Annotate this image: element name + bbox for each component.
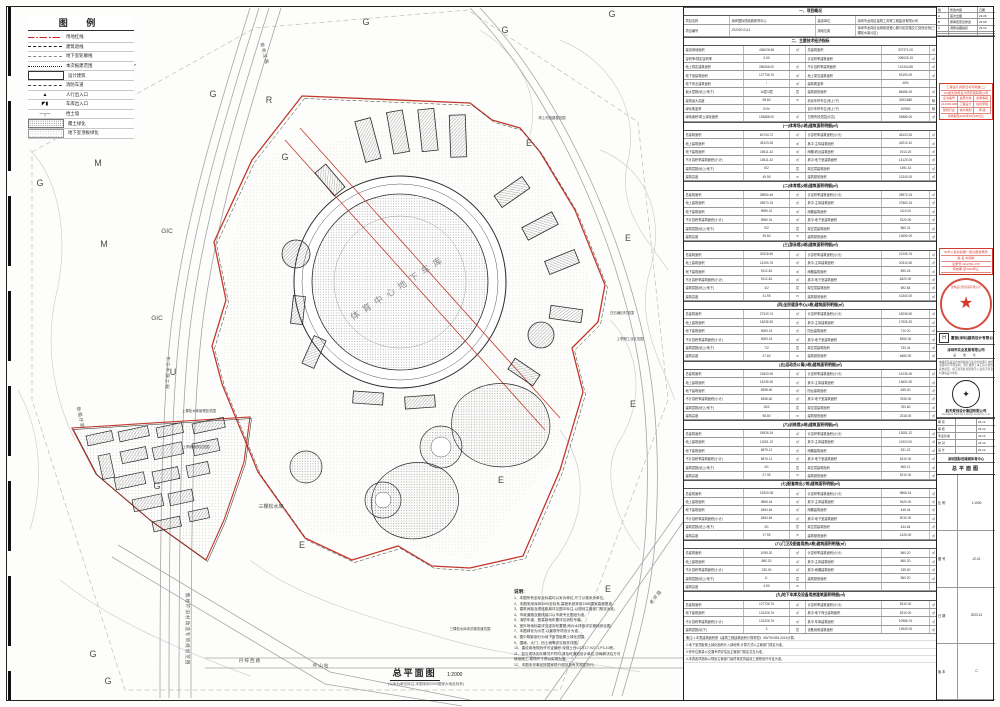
table-cell: 架空层建筑面积: [806, 284, 882, 291]
table-cell: 21205.76: [882, 251, 930, 258]
table-data-row: 地上建筑面积18236.50㎡其中:主体建筑面积17526.30㎡: [684, 319, 937, 327]
plan-scale: 1:2000: [447, 672, 462, 678]
table-cell: 地下建筑面积: [684, 387, 744, 394]
table-cell: 84686.30: [882, 88, 930, 95]
table-data-row: 不计容积率建筑面积(小计)9980.31㎡其中:地下室建筑面积9120.00㎡: [684, 216, 937, 224]
table-cell: 其中:主体建筑面积: [806, 139, 882, 146]
revision-cell: [949, 32, 978, 33]
owner-box: 深圳市实业发展有限公司 盖 章 处: [937, 345, 995, 359]
graydash-icon: [28, 53, 62, 60]
table-data-row: 建筑高度47.60m建筑基底面积6480.00㎡: [684, 352, 937, 360]
table-data-row: 建筑高度4.50m: [684, 583, 937, 591]
table-cell: 53190.00: [882, 71, 930, 78]
round-annex-building: [282, 240, 310, 268]
plan-title-block: 总平面图 1:2000 (以米为单位标注,本图采用2000国家大地坐标系): [388, 663, 464, 687]
table-cell: 地下商业建筑面积: [684, 80, 744, 87]
table-cell: 架空层建筑面积: [806, 463, 882, 470]
road-name-label: 俄地吓旧村改造专项规划范围: [184, 593, 191, 666]
zone-letter: E: [625, 233, 631, 243]
table-section-title: (九)地下车库及设备用房建筑面积明细(㎡): [776, 592, 846, 599]
table-cell: 9980.31: [744, 216, 790, 223]
table-cell: 总建筑面积: [684, 251, 744, 258]
zone-letter: G: [89, 649, 96, 659]
table-data-row: 总建筑面积22633.90㎡计容积率建筑面积(小计)14235.30㎡: [684, 370, 937, 378]
table-data-row: 建筑高度49.95m建筑基底面积21340.00㎡: [684, 173, 937, 181]
table-cell: 总建筑面积: [684, 549, 744, 556]
zone-letter: GIC: [161, 228, 173, 235]
table-section-header: (六)训练馆(6栋)建筑面积明细(㎡): [684, 420, 937, 429]
legend-item: 地下室顶板绿化: [28, 129, 134, 139]
table-cell: 层: [790, 523, 806, 530]
table-cell: 计容积率建筑面积(小计): [806, 310, 882, 317]
table-data-row: 总建筑面积1095.20㎡计容积率建筑面积(小计)860.20㎡: [684, 549, 937, 557]
table-cell: ㎡: [790, 131, 806, 138]
table-cell: 38950.46: [744, 191, 790, 198]
table-data-row: 不计容积率建筑面积(小计)6875.12㎡其中:地下室建筑面积6310.00㎡: [684, 455, 937, 463]
table-cell: 14235.30: [882, 370, 930, 377]
table-cell: 用地位置: [816, 25, 856, 36]
table-cell: 地上建筑面积: [684, 558, 744, 565]
table-cell: m: [790, 412, 806, 419]
table-cell: 容积率/规定容积率: [684, 55, 744, 62]
table-cell: 建筑高度: [684, 233, 744, 240]
table-data-row: 建筑最大高度98.80m机动车停车位(地上/下)325/2680辆: [684, 97, 937, 105]
table-cell: 建筑高度: [684, 173, 744, 180]
table-cell: 其中:主体建筑面积: [806, 498, 882, 505]
plan-annotation-label: 简上村统建楼范围: [538, 115, 566, 120]
legend-label: 建筑退线: [66, 44, 84, 50]
table-data-row: 建筑层数(地上/地下)4/1层架空层建筑面积565.12㎡: [684, 463, 937, 471]
table-cell: 地下建筑面积: [684, 327, 744, 334]
zone-letter: GIC: [151, 315, 163, 322]
table-cell: 18926.34: [744, 430, 790, 437]
table-cell: 8398.60: [744, 395, 790, 402]
table-data-row: 地下建筑面积9083.24㎡阳台建筑面积710.20㎡: [684, 327, 937, 335]
table-cell: ㎡: [790, 430, 806, 437]
table-cell: 架空层建筑面积: [806, 523, 882, 530]
table-data-row: 建筑层数(地上/地下)6/2层架空层建筑面积1491.42㎡: [684, 165, 937, 173]
signature-cell: [956, 447, 977, 453]
plan-annotation-label: 上李朗地铁站范围: [182, 444, 210, 449]
table-cell: 不计容积率建筑面积: [806, 63, 882, 70]
revision-cell: 23.12: [978, 26, 995, 31]
table-data-row: 建筑层数(地上/地下)7/2层架空层建筑面积733.24㎡: [684, 344, 937, 352]
table-cell: 27.35: [744, 472, 790, 479]
legend-label: 挡土墙: [66, 111, 79, 117]
table-cell: ㎡: [790, 370, 806, 377]
table-cell: m: [790, 293, 806, 300]
table-cell: 总建筑面积: [684, 430, 744, 437]
table-section-title: (六)训练馆(6栋)建筑面积明细(㎡): [783, 422, 838, 429]
legend-item: ◤▮车库出入口: [28, 100, 134, 110]
table-cell: 雨棚建筑面积: [806, 506, 882, 513]
table-cell: ㎡: [790, 498, 806, 505]
table-data-row: 地上建筑面积45123.30㎡其中:主体建筑面积43210.10㎡: [684, 139, 937, 147]
table-cell: 总建筑面积: [684, 489, 744, 496]
table-section-title: (四)全民健身中心(4栋)建筑面积明细(㎡): [777, 302, 844, 309]
revision-cell: 首次出图: [949, 13, 978, 18]
table-cell: ㎡: [790, 191, 806, 198]
revision-cell: 版: [937, 7, 949, 12]
table-cell: 地上建筑面积: [684, 139, 744, 146]
zone-letter: E: [498, 475, 504, 485]
legend-label: 地下室顶板绿化: [68, 130, 99, 136]
notes-panel: 说明: 1、本图所有坐标及标高均以米为单位,尺寸以毫米为单位。2、本图采用深圳2…: [514, 589, 696, 668]
table-cell: 建筑基底面积: [806, 88, 882, 95]
notes-title: 说明:: [514, 589, 696, 595]
revision-cell: [978, 34, 995, 35]
table-cell: 692.84: [882, 284, 930, 291]
table-cell: 建筑层数(地上/地下): [684, 224, 744, 231]
table-cell: 127736.76: [744, 601, 790, 608]
titleblock-label: 图 号: [937, 531, 958, 586]
table-cell: 地下建筑面积: [684, 148, 744, 155]
table-cell: 地下室建筑面积: [684, 71, 744, 78]
table-data-row: 地下建筑面积6875.12㎡雨棚建筑面积531.22㎡: [684, 447, 937, 455]
table-cell: ㎡: [790, 251, 806, 258]
table-remark-line: 备注:1.本表建筑面积按《建筑工程建筑面积计算规范》GB/T50353-2013…: [684, 634, 937, 641]
table-cell: /: [744, 80, 790, 87]
table-cell: 阳台建筑面积: [806, 387, 882, 394]
qualification-stamp: 工程设计资质证书专用章(二) XX航天建筑设计研究院有限公司 证书编号资质分类资…: [939, 83, 993, 120]
table-cell: 阳台建筑面积: [806, 327, 882, 334]
table-cell: 13600.30: [882, 378, 930, 385]
table-cell: m: [790, 233, 806, 240]
design-firm-row: H 霍普(深圳)建筑设计有限公司: [937, 331, 995, 345]
table-cell: 建筑高度: [684, 412, 744, 419]
table-data-row: 绿化覆盖率51%自行车停车位(地上/下)1095/0辆: [684, 105, 937, 113]
table-cell: 22633.90: [744, 370, 790, 377]
table-cell: m: [790, 583, 806, 590]
round-annex-building-2: [528, 322, 554, 348]
table-cell: 860.20: [744, 558, 790, 565]
table-cell: 153888.00: [744, 113, 790, 120]
legend-item: 地下室轮廓线: [28, 52, 134, 62]
table-data-row: 地下建筑面积8398.60㎡阳台建筑面积635.00㎡: [684, 387, 937, 395]
table-cell: 4.50: [744, 583, 790, 590]
table-cell: 445.44: [882, 506, 930, 513]
table-data-row: 建筑高度39.80m建筑基底面积12650.00㎡: [684, 233, 937, 241]
table-data-row: 最大层数(地上/地下)16层/3层层建筑基底面积84686.30㎡: [684, 88, 937, 96]
table-cell: 其中:地下室建筑面积: [806, 216, 882, 223]
zone-letter: E: [630, 399, 636, 409]
legend-title: 图 例: [28, 16, 134, 31]
table-cell: ㎡: [790, 216, 806, 223]
table-data-row: 地上建筑面积14235.30㎡其中:主体建筑面积13600.30㎡: [684, 378, 937, 386]
table-cell: 地下建筑面积: [684, 506, 744, 513]
revision-row: [937, 34, 995, 36]
table-section-title: 二、主要技术经济指标: [792, 38, 830, 45]
table-cell: 10240.00: [882, 293, 930, 300]
table-cell: 565.12: [882, 463, 930, 470]
table-data-row: 地上建筑面积21205.76㎡其中:主体建筑面积20310.50㎡: [684, 259, 937, 267]
table-cell: 不计容积率建筑面积(小计): [684, 515, 744, 522]
zone-letter: G: [153, 481, 160, 491]
table-cell: 计容积率建筑面积(小计): [806, 489, 882, 496]
table-cell: m: [790, 531, 806, 538]
table-cell: 地上建筑面积: [684, 378, 744, 385]
table-info-row: 项目名称深圳国际低碳城体育中心建设单位深圳市龙岗区建筑工务署工程建设有限公司: [684, 16, 937, 24]
table-cell: 总建筑面积: [684, 191, 744, 198]
table-cell: 3/1: [744, 523, 790, 530]
table-cell: 深圳市龙岗区龙城街道爱心路与如意路交汇处西北侧(三棵松水库片区): [856, 25, 937, 36]
titleblock-value: 2023.12: [958, 588, 995, 643]
zone-letter: G: [362, 17, 369, 27]
table-cell: 建筑最大高度: [684, 97, 744, 104]
table-data-row: 建筑高度17.95m建筑基底面积4126.00㎡: [684, 531, 937, 539]
legend-item: ─┬─挡土墙: [28, 110, 134, 120]
table-cell: ㎡: [790, 71, 806, 78]
table-data-row: 总建筑面积27319.74㎡计容积率建筑面积(小计)18236.50㎡: [684, 310, 937, 318]
table-data-row: 地上建筑面积28970.15㎡其中:主体建筑面积27860.15㎡: [684, 199, 937, 207]
table-cell: 8420.00: [882, 276, 930, 283]
table-cell: 16/2: [744, 404, 790, 411]
table-cell: 建筑基底面积: [806, 412, 882, 419]
table-section-title: (七)配套商业(7栋)建筑面积明细(㎡): [781, 481, 840, 488]
table-cell: 531.22: [882, 447, 930, 454]
table-data-row: 建筑层数(地上/地下)16/2层架空层建筑面积763.60㎡: [684, 404, 937, 412]
table-cell: 不计容积率建筑面积(小计): [684, 335, 744, 342]
road-name-label: 新布龙路: [258, 42, 270, 65]
revision-cell: 修改内容: [949, 7, 978, 12]
legend-label: 车库出入口: [66, 101, 88, 107]
legend-label: 设计建筑: [68, 73, 86, 79]
table-data-row: 地上建筑面积12051.22㎡其中:主体建筑面积11520.00㎡: [684, 438, 937, 446]
table-cell: ㎡: [790, 447, 806, 454]
table-cell: 49.95: [744, 173, 790, 180]
table-cell: 15611.42: [744, 148, 790, 155]
table-cell: 15320.08: [744, 489, 790, 496]
table-cell: 860.31: [882, 224, 930, 231]
table-data-row: 不计容积率建筑面积(小计)122426.76㎡其中:车库建筑面积10986.76…: [684, 617, 937, 625]
table-data-row: 不计容积率建筑面积(小计)9083.24㎡其中:地下室建筑面积8350.00㎡: [684, 335, 937, 343]
titleblock-label: 比 例: [937, 475, 958, 530]
titleblock-value: 1:1000: [958, 475, 995, 530]
table-section-title: (八)门卫及配套用房(8栋)建筑面积明细(㎡): [775, 541, 845, 548]
table-cell: 层: [790, 224, 806, 231]
table-cell: 计容积率建筑面积: [806, 55, 882, 62]
table-cell: ㎡: [790, 438, 806, 445]
table-cell: 12051.22: [744, 438, 790, 445]
table-cell: 11520.00: [882, 438, 930, 445]
zone-letter: M: [100, 239, 108, 249]
signature-cell: 专业负责: [937, 433, 956, 439]
revision-table: 版修改内容日期A首次出图23.06B按审查意见修改23.09C调整总图指标23.…: [937, 7, 995, 37]
table-cell: [790, 55, 806, 62]
table-data-row: 总建筑面积30318.60㎡计容积率建筑面积(小计)21205.76㎡: [684, 251, 937, 259]
table-cell: 雨棚建筑面积: [806, 447, 882, 454]
table-cell: 不计容积率建筑面积(小计): [684, 216, 744, 223]
table-data-row: 总建筑面积18926.34㎡计容积率建筑面积(小计)12051.22㎡: [684, 430, 937, 438]
titleblock-label: 日 期: [937, 588, 958, 643]
plan-annotation-label: 上棵松水库管理处范围: [182, 408, 217, 413]
zone-letter: G: [501, 25, 508, 35]
table-cell: 总建筑面积: [684, 601, 744, 608]
table-cell: 7/2: [744, 344, 790, 351]
table-cell: 12540.00: [882, 626, 930, 633]
table-cell: 0.60: [744, 55, 790, 62]
signature-row: 设 计23.12: [937, 447, 995, 454]
table-cell: ㎡: [790, 566, 806, 573]
seal-star-icon: ★: [959, 293, 973, 313]
owner-seal-area-label: 盖 章 处: [939, 353, 993, 357]
table-cell: 日照有效范围(示意): [806, 113, 882, 120]
table-cell: ㎡: [790, 506, 806, 513]
signature-row: 校 对23.12: [937, 440, 995, 447]
table-cell: 计容积率建筑面积(小计): [806, 549, 882, 556]
table-cell: 其中:主体建筑面积: [806, 319, 882, 326]
table-cell: 27860.15: [882, 199, 930, 206]
table-data-row: 不计容积率建筑面积(小计)8398.60㎡其中:地下室建筑面积7635.00㎡: [684, 395, 937, 403]
table-cell: 9112.84: [744, 267, 790, 274]
table-cell: ㎡: [790, 617, 806, 624]
table-cell: 5210.00: [882, 472, 930, 479]
table-section-header: (三)游泳馆(3栋)建筑面积明细(㎡): [684, 241, 937, 250]
stamp-grid-cell: 甲 级: [974, 108, 991, 114]
road-name-label: 坪山站: [313, 662, 330, 669]
table-cell: 建筑层数(地上/地下): [684, 165, 744, 172]
table-cell: 9112.84: [744, 276, 790, 283]
table-cell: 5/2: [744, 224, 790, 231]
table-section-header: (一)体育场(1栋)建筑面积明细(㎡): [684, 122, 937, 131]
table-cell: 10986.76: [882, 617, 930, 624]
table-data-row: 总建筑面积60734.72㎡计容积率建筑面积(小计)45123.30㎡: [684, 131, 937, 139]
table-cell: 1095.20: [744, 549, 790, 556]
table-cell: 46%: [882, 80, 930, 87]
table-data-row: 地下商业建筑面积/㎡建筑覆盖率46%: [684, 80, 937, 88]
table-cell: JS2020-0112: [730, 25, 816, 36]
architect-stamp: 中华人民共和国一级注册建筑师 姓 名 刘如昕注册号 1112301-076有效期…: [939, 248, 993, 275]
table-cell: 7635.00: [882, 395, 930, 402]
road-name-label: 东江水源工程: [163, 356, 171, 390]
table-cell: ㎡: [790, 63, 806, 70]
table-cell: 28970.15: [882, 191, 930, 198]
table-cell: 总建筑面积: [806, 46, 882, 53]
table-cell: 9120.00: [882, 216, 930, 223]
table-cell: 8398.60: [744, 387, 790, 394]
table-cell: ㎡: [790, 558, 806, 565]
plan-annotation-label: 三棵松水库: [258, 503, 283, 510]
table-data-row: 总建筑面积38950.46㎡计容积率建筑面积(小计)28970.15㎡: [684, 191, 937, 199]
signature-cell: 设 计: [937, 447, 956, 453]
signature-cell: 23.12: [977, 419, 995, 425]
table-cell: 地下建筑面积: [684, 208, 744, 215]
table-cell: 733.24: [882, 344, 930, 351]
table-cell: 31.95: [744, 293, 790, 300]
table-cell: 建筑高度: [684, 531, 744, 538]
zone-letter: E: [299, 540, 305, 550]
table-cell: [882, 583, 930, 590]
plan-annotation-label: 三棵松水库泄洪渠改道范围: [450, 626, 491, 631]
table-cell: 其中:地下室建筑面积: [806, 455, 882, 462]
table-cell: 雨棚建筑面积: [806, 267, 882, 274]
table-cell: [790, 105, 806, 112]
table-cell: 9083.24: [744, 327, 790, 334]
table-cell: 项目名称: [684, 16, 730, 23]
table-section-header: 二、主要技术经济指标: [684, 37, 937, 46]
signature-cell: 23.12: [977, 426, 995, 432]
table-cell: 建筑基底面积: [806, 531, 882, 538]
table-cell: 6480.00: [882, 352, 930, 359]
table-cell: 其中:雨棚建筑面积: [806, 566, 882, 573]
table-cell: 地上建筑面积: [684, 259, 744, 266]
table-cell: 架空层建筑面积: [806, 165, 882, 172]
table-cell: 5454.64: [744, 515, 790, 522]
venue-building: [291, 295, 306, 324]
table-cell: ㎡: [790, 276, 806, 283]
legend-item: 覆土绿化: [28, 119, 134, 129]
table-cell: 28970.15: [744, 199, 790, 206]
table-cell: 9865.44: [882, 489, 930, 496]
table-cell: 地下建筑面积: [684, 267, 744, 274]
hatch-icon: [28, 119, 64, 128]
table-cell: 其中:地下室建筑面积: [806, 335, 882, 342]
table-remark-line: 2.地下室顶板覆土绿化面积计入绿地率,计算方式以主管部门核定为准。: [684, 641, 937, 648]
table-cell: 建筑基底面积: [806, 173, 882, 180]
table-cell: 18236.50: [744, 319, 790, 326]
table-cell: 层: [790, 574, 806, 581]
table-cell: 项目编号: [684, 25, 730, 36]
table-section-title: (二)体育馆(2栋)建筑面积明细(㎡): [783, 183, 838, 190]
table-cell: ㎡: [790, 199, 806, 206]
table-cell: 2318.00: [882, 412, 930, 419]
table-cell: 其中:主体建筑面积: [806, 438, 882, 445]
table-cell: 绿地面积/覆土绿化面积: [684, 113, 744, 120]
table-data-row: 地下建筑面积15611.42㎡雨棚/看台建筑面积1913.20㎡: [684, 148, 937, 156]
table-cell: 计容积率建筑面积(小计): [806, 370, 882, 377]
road-name-label: 丹梓西路: [239, 657, 261, 664]
table-cell: ㎡: [790, 139, 806, 146]
table-cell: 建筑层数(地上/地下): [684, 574, 744, 581]
table-cell: 122426.76: [744, 617, 790, 624]
revision-cell: [937, 32, 949, 33]
legend-label: 消防车道: [66, 82, 84, 88]
table-cell: 雨棚建筑面积: [806, 208, 882, 215]
revision-cell: [937, 34, 949, 35]
drawing-name: 总平面图: [938, 465, 994, 472]
owner-name: 深圳市实业发展有限公司: [939, 347, 993, 352]
table-cell: 其中:主体建筑面积: [806, 378, 882, 385]
table-cell: 763.60: [882, 404, 930, 411]
table-cell: 3: [744, 626, 790, 633]
table-cell: 建筑基底面积: [806, 574, 882, 581]
table-cell: ㎡: [790, 335, 806, 342]
table-cell: 建筑高度: [684, 472, 744, 479]
table-cell: ㎡: [790, 113, 806, 120]
table-cell: 其中:地下室建筑面积: [806, 156, 882, 163]
stamp-grid-cell: 城乡规划: [958, 108, 975, 114]
table-cell: 建筑基底面积: [806, 352, 882, 359]
west-parcel: [72, 417, 252, 562]
plan-annotation-label: 上李朗工业区范围: [616, 336, 644, 341]
table-cell: 深圳市龙岗区建筑工务署工程建设有限公司: [856, 16, 937, 23]
table-cell: ㎡: [790, 310, 806, 317]
table-cell: 9980.31: [744, 208, 790, 215]
seal-arc-text: 建筑设计研究院有限公司: [943, 285, 990, 289]
table-cell: ㎡: [790, 395, 806, 402]
table-cell: ㎡: [790, 515, 806, 522]
table-cell: 860.20: [882, 549, 930, 556]
table-cell: 层: [790, 165, 806, 172]
table-cell: 4/1: [744, 463, 790, 470]
project-name: 深圳国际低碳城体育中心: [938, 456, 994, 461]
table-cell: ㎡: [790, 327, 806, 334]
table-data-row: 绿地面积/覆土绿化面积153888.00㎡日照有效范围(示意)53888.00㎡: [684, 113, 937, 121]
table-section-title: (三)游泳馆(3栋)建筑面积明细(㎡): [783, 242, 838, 249]
rect-icon: [28, 71, 64, 80]
table-data-row: 建筑高度98.80m建筑基底面积2318.00㎡: [684, 412, 937, 420]
plan-title-caption: (以米为单位标注,本图采用2000国家大地坐标系): [388, 682, 464, 687]
